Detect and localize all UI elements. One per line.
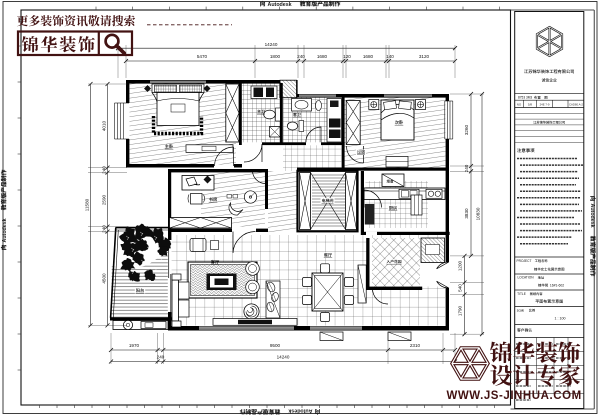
svg-text:14240: 14240 (265, 42, 278, 47)
svg-text:140: 140 (386, 54, 394, 59)
svg-text:240: 240 (157, 355, 165, 360)
svg-text:2310: 2310 (410, 343, 421, 348)
svg-text:1680: 1680 (363, 54, 374, 59)
svg-text:14240: 14240 (277, 355, 290, 360)
svg-text:1800: 1800 (270, 54, 281, 59)
svg-text:3260: 3260 (464, 124, 469, 135)
svg-text:1200: 1200 (458, 260, 463, 271)
svg-text:1 : 100: 1 : 100 (555, 317, 566, 321)
svg-text:24E 7-9: 24E 7-9 (540, 102, 550, 106)
svg-text:9500: 9500 (270, 343, 281, 348)
svg-text:540: 540 (458, 284, 463, 292)
svg-text:5470: 5470 (197, 54, 208, 59)
svg-text:5/8: 5/8 (528, 102, 533, 106)
svg-text:4010: 4010 (101, 120, 106, 131)
svg-text:NO: NO (517, 102, 522, 106)
svg-text:1970: 1970 (129, 343, 140, 348)
svg-text:Autodesk: Autodesk (2, 218, 8, 242)
svg-text:8753 3M3: 8753 3M3 (518, 96, 532, 100)
svg-text:16#1-602: 16#1-602 (550, 284, 564, 288)
svg-text:1680: 1680 (317, 54, 328, 59)
svg-text:CAD80 A-2: CAD80 A-2 (569, 102, 583, 106)
svg-text:WWW.JS-JINHUA.COM: WWW.JS-JINHUA.COM (447, 390, 582, 402)
svg-text:240: 240 (464, 164, 469, 172)
svg-text:LOCATION: LOCATION (517, 276, 534, 280)
svg-text:11580: 11580 (84, 198, 89, 211)
svg-text:1790: 1790 (458, 305, 463, 316)
svg-text:2590: 2590 (101, 194, 106, 205)
svg-text:3830: 3830 (464, 208, 469, 219)
svg-text:Autodesk: Autodesk (268, 2, 292, 8)
svg-text:TITLE: TITLE (517, 292, 526, 296)
svg-text:3120: 3120 (419, 54, 430, 59)
svg-text:Autodesk: Autodesk (589, 204, 595, 228)
svg-text:scale: scale (517, 308, 525, 312)
svg-text:10830: 10830 (476, 207, 481, 220)
svg-text:120: 120 (343, 54, 351, 59)
svg-text:Autodesk: Autodesk (288, 408, 312, 414)
svg-text:4500: 4500 (101, 273, 106, 284)
svg-text:PROJECT: PROJECT (517, 259, 532, 263)
